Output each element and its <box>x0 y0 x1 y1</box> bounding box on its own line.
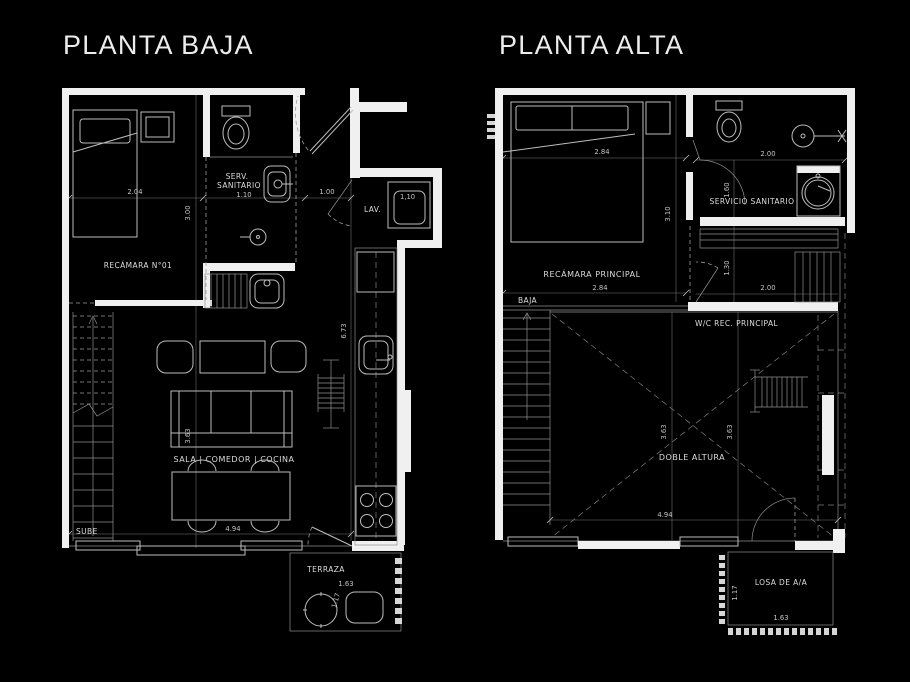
serv-sanitario-line1: SERV. <box>226 172 249 181</box>
pa-bathroom: 1.60 2.00 SERVICIO SANITARIO <box>693 101 846 216</box>
dim-wc-width: 2.00 <box>760 284 775 292</box>
dim-void-depth-left: 3.63 <box>660 424 668 439</box>
dim-bed-width-top: 2.84 <box>594 148 609 156</box>
pb-laundry: 1,10 LAV. <box>328 180 430 228</box>
fridge <box>357 252 394 292</box>
losa-hatch-bottom <box>728 628 837 635</box>
armchair <box>271 341 306 372</box>
dim-losa-depth: 1.17 <box>731 585 739 600</box>
planta-alta-plan: PLANTA ALTA <box>487 30 855 635</box>
recamara-label: RECÁMARA N°01 <box>104 261 172 270</box>
dining-set <box>172 460 290 532</box>
losa-hatch-left <box>719 555 725 624</box>
dim-sala-depth: 3.63 <box>184 428 192 443</box>
window-ticks <box>487 114 495 139</box>
shower-head <box>792 125 846 147</box>
serv-sanitario-line2: SANITARIO <box>217 181 261 190</box>
dim-sala-width: 4.94 <box>225 525 240 533</box>
single-bed <box>73 110 137 237</box>
planta-baja-title: PLANTA BAJA <box>63 30 254 60</box>
dim-bath-depth: 1.60 <box>723 182 731 197</box>
pa-stairs <box>503 310 550 525</box>
dim-bath-width: 2.00 <box>760 150 775 158</box>
toilet <box>716 101 742 142</box>
floor-plan-sheet: PLANTA BAJA <box>0 0 910 682</box>
pb-stairs: SUBE <box>73 312 113 541</box>
baja-label: BAJA <box>518 296 538 305</box>
terraza-label: TERRAZA <box>306 565 345 574</box>
lav-label: LAV. <box>364 205 381 214</box>
dim-recamara-width: 2.04 <box>127 188 142 196</box>
pa-double-height: DOBLE ALTURA 3.63 3.63 4.94 <box>550 233 845 541</box>
lav-dim: 1,10 <box>400 193 415 201</box>
dining-table <box>172 472 290 520</box>
closet-sliding <box>700 229 838 248</box>
pb-hall-fixtures <box>205 274 284 308</box>
dim-closet-depth: 1.30 <box>723 260 731 275</box>
sube-label: SUBE <box>76 527 98 536</box>
recamara-principal-label: RECÁMARA PRINCIPAL <box>543 268 640 279</box>
sala-label: SALA | COMEDOR | COCINA <box>173 455 294 464</box>
losa-label: LOSA DE A/A <box>755 578 808 587</box>
dim-entry-width: 1.00 <box>319 188 334 196</box>
pb-bathroom: SERV. SANITARIO 1.10 <box>217 106 293 245</box>
serv-sanitario-dim: 1.10 <box>236 191 251 199</box>
vanity-sink <box>797 166 840 216</box>
king-bed <box>503 102 643 242</box>
toilet <box>222 106 250 149</box>
nightstand <box>646 102 670 134</box>
lavabo-sink <box>250 274 284 308</box>
stairs-treads <box>503 318 550 505</box>
pa-losa: LOSA DE A/A 1.17 1.63 <box>719 552 837 635</box>
dim-void-width: 4.94 <box>657 511 672 519</box>
balcony-door <box>752 498 795 541</box>
dining-chair <box>188 521 216 532</box>
pb-dimension-lines <box>66 95 354 548</box>
terrace-chair <box>346 592 383 623</box>
pa-closet: 1.30 2.00 W/C REC. PRINCIPAL <box>695 229 840 328</box>
pb-entry-door: 1.00 <box>295 96 353 196</box>
armchair <box>157 341 193 373</box>
nightstand <box>141 112 174 142</box>
pa-dimension-lines <box>500 95 848 540</box>
upper-window-projection <box>818 233 845 538</box>
dim-losa-width: 1.63 <box>773 614 788 622</box>
washer <box>388 182 430 228</box>
pb-walls <box>62 88 442 551</box>
planta-alta-title: PLANTA ALTA <box>499 30 684 60</box>
pass-through-shelf <box>318 360 344 428</box>
dim-void-depth-right: 3.63 <box>726 424 734 439</box>
pb-bedroom: 2.04 3.00 RECÁMARA N°01 <box>73 110 192 270</box>
floor-plans-drawing: PLANTA BAJA <box>0 0 910 682</box>
pa-master-bedroom: 2.84 3.10 RECÁMARA PRINCIPAL 2.84 BAJA <box>503 102 672 305</box>
dim-recamara-depth: 3.00 <box>184 205 192 220</box>
doble-altura-label: DOBLE ALTURA <box>659 453 725 462</box>
planta-baja-plan: PLANTA BAJA <box>62 30 442 631</box>
closet-hatch <box>205 274 247 308</box>
coffee-table <box>200 341 265 373</box>
dining-chair <box>251 521 279 532</box>
shower-drain <box>240 229 266 245</box>
sink <box>264 166 293 202</box>
dim-terraza-width: 1.63 <box>338 580 353 588</box>
pb-living: 3.63 SALA | COMEDOR | COCINA 4.94 <box>157 341 306 533</box>
pa-bottom-wall <box>503 498 845 553</box>
dim-corridor-length: 6.73 <box>340 323 348 338</box>
pb-kitchen <box>318 248 397 545</box>
mezzanine-railing <box>750 370 808 412</box>
servicio-sanitario-label: SERVICIO SANITARIO <box>710 197 795 206</box>
closet-shelves <box>795 252 840 302</box>
dim-bed-width-bottom: 2.84 <box>592 284 607 292</box>
dim-recamara-principal-depth: 3.10 <box>664 206 672 221</box>
wc-principal-label: W/C REC. PRINCIPAL <box>695 319 778 328</box>
